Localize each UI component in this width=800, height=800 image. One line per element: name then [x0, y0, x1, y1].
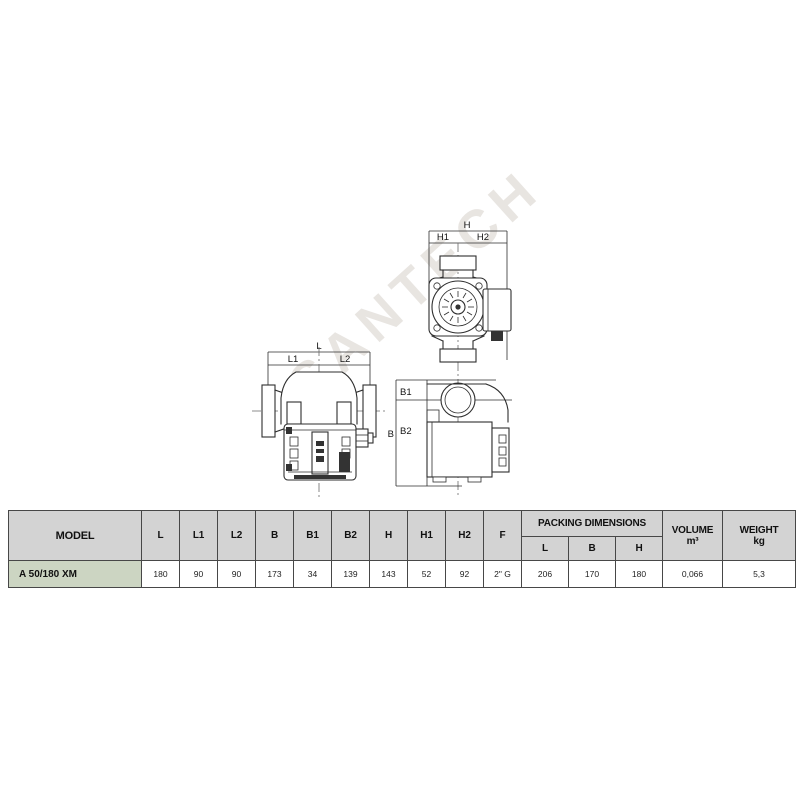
- cell-packing-B: 170: [569, 561, 616, 588]
- cell-H2: 92: [446, 561, 484, 588]
- top-view: B B1 B2: [388, 380, 512, 486]
- cell-B: 173: [256, 561, 294, 588]
- side-view: L L1 L2: [252, 341, 386, 497]
- cell-L1: 90: [180, 561, 218, 588]
- col-header-B2: B2: [332, 511, 370, 561]
- col-header-packing-B: B: [569, 537, 616, 561]
- cell-packing-L: 206: [522, 561, 569, 588]
- col-header-packing-dimensions: PACKING DIMENSIONS: [522, 511, 663, 537]
- col-header-packing-L: L: [522, 537, 569, 561]
- volume-label: VOLUME: [672, 525, 714, 536]
- cell-B2: 139: [332, 561, 370, 588]
- col-header-F: F: [484, 511, 522, 561]
- cell-model: A 50/180 XM: [9, 561, 142, 588]
- dimensions-table: MODEL L L1 L2 B B1 B2 H H1 H2 F PACKING …: [8, 510, 796, 588]
- cell-packing-H: 180: [616, 561, 663, 588]
- dim-label-H: H: [464, 220, 471, 231]
- col-header-B1: B1: [294, 511, 332, 561]
- dim-label-L1: L1: [288, 354, 299, 365]
- cell-B1: 34: [294, 561, 332, 588]
- dim-label-H1: H1: [437, 232, 449, 243]
- dim-label-B1: B1: [400, 387, 412, 398]
- dim-label-L2: L2: [340, 354, 351, 365]
- weight-unit: kg: [753, 536, 764, 547]
- col-header-volume: VOLUME m³: [663, 511, 723, 561]
- volume-unit: m³: [687, 536, 699, 547]
- datasheet-page: SANTECH L L1 L2: [0, 0, 800, 800]
- cell-L: 180: [142, 561, 180, 588]
- table-row: A 50/180 XM 180 90 90 173 34 139 143 52 …: [9, 561, 796, 588]
- col-header-L1: L1: [180, 511, 218, 561]
- col-header-B: B: [256, 511, 294, 561]
- pump-dimensional-drawing: L L1 L2: [0, 0, 800, 505]
- col-header-model: MODEL: [9, 511, 142, 561]
- col-header-L: L: [142, 511, 180, 561]
- col-header-H2: H2: [446, 511, 484, 561]
- cell-F: 2" G: [484, 561, 522, 588]
- col-header-H: H: [370, 511, 408, 561]
- col-header-weight: WEIGHT kg: [723, 511, 796, 561]
- table-header-row: MODEL L L1 L2 B B1 B2 H H1 H2 F PACKING …: [9, 511, 796, 537]
- cell-volume: 0,066: [663, 561, 723, 588]
- cell-H: 143: [370, 561, 408, 588]
- dim-label-B: B: [388, 429, 394, 440]
- cell-L2: 90: [218, 561, 256, 588]
- col-header-packing-H: H: [616, 537, 663, 561]
- cell-weight: 5,3: [723, 561, 796, 588]
- cell-H1: 52: [408, 561, 446, 588]
- col-header-L2: L2: [218, 511, 256, 561]
- dim-label-B2: B2: [400, 426, 412, 437]
- weight-label: WEIGHT: [740, 525, 779, 536]
- col-header-H1: H1: [408, 511, 446, 561]
- dim-label-H2: H2: [477, 232, 489, 243]
